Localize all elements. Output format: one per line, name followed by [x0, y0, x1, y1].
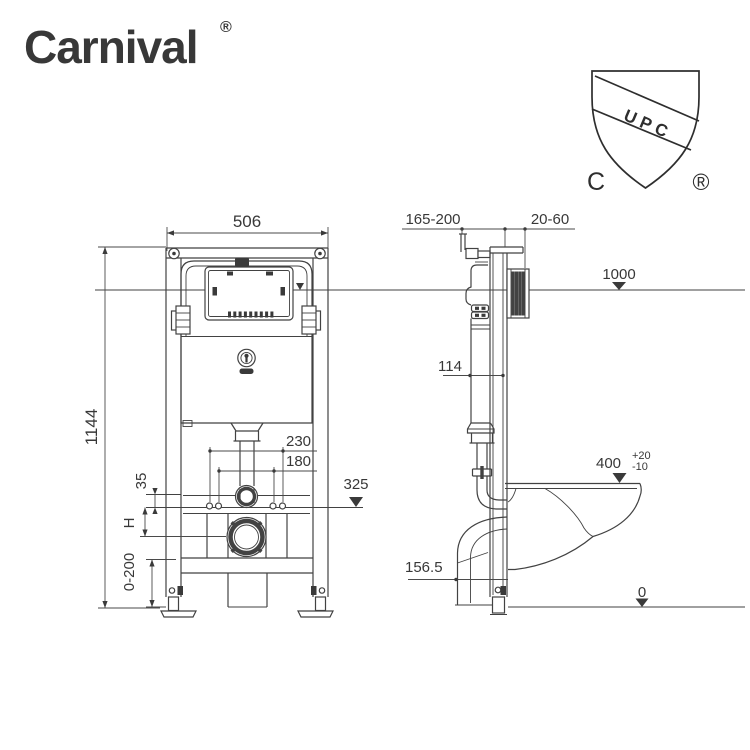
offset-label: 35 [133, 473, 150, 490]
waste-drain-side [455, 517, 507, 605]
flush-pipe-side [470, 433, 508, 509]
dim-flush-bend-level: 325 [343, 476, 368, 507]
drain-level-label: 156.5 [405, 559, 443, 576]
brand-registered-mark: ® [220, 19, 232, 36]
side-view: 165-200 20-60 [402, 211, 745, 615]
dim-variable-height: H [121, 508, 226, 537]
dim-button-level: 1000 [602, 266, 635, 290]
level-marker-icon [296, 283, 304, 290]
panel-comb-strip [228, 312, 273, 318]
frame-height-label: 1144 [82, 409, 101, 446]
upc-label: UPC [621, 106, 675, 143]
carnival-logo: Carnival ® [24, 19, 232, 73]
toilet-bowl-side [505, 484, 641, 570]
waste-outlet [227, 518, 266, 557]
fixing-hole-icon [280, 503, 286, 509]
frame-bottom-box [228, 573, 267, 607]
fixing-hole-icon [207, 503, 213, 509]
floor-level-label: 0 [638, 584, 646, 601]
fixing-hole-icon [216, 503, 222, 509]
wall-sleeve-corrugated [507, 269, 529, 318]
access-panel [205, 258, 304, 321]
dim-floor-level: 0 [636, 584, 649, 607]
frame-width-label: 506 [233, 212, 261, 231]
fixing-spacing-outer-label: 230 [286, 433, 311, 450]
dim-leg-adjustment: 0-200 [121, 553, 176, 607]
front-view: 506 1144 230 180 [82, 212, 369, 617]
level-marker-icon [636, 599, 649, 608]
bowl-top-level-label: 400 [596, 455, 621, 472]
certification-c-mark: C [587, 168, 605, 196]
variable-height-label: H [121, 518, 138, 529]
level-marker-icon [349, 497, 363, 507]
panel-tab [235, 258, 249, 268]
bowl-tolerance-minus-label: -10 [632, 461, 648, 473]
water-supply-pipe [459, 234, 490, 259]
leg-adjustment-label: 0-200 [121, 553, 138, 591]
button-level-label: 1000 [602, 266, 635, 283]
dim-fixing-spacing-inner: 180 [217, 453, 317, 502]
brand-name: Carnival [24, 21, 198, 73]
level-marker-icon [613, 473, 627, 483]
installation-drawing: Carnival ® UPC C ® [0, 0, 750, 750]
wall-clearance-label: 20-60 [531, 211, 569, 228]
frame-feet [161, 586, 333, 617]
dim-install-depth: 165-200 20-60 [402, 211, 575, 268]
fixing-hole-icon [270, 503, 276, 509]
dim-bowl-top-level: 400 +20 -10 [596, 450, 651, 483]
upc-certification-badge: UPC C ® [587, 71, 710, 196]
level-marker-icon [612, 282, 626, 290]
dim-frame-width: 506 [167, 212, 328, 251]
certification-registered-mark: ® [693, 169, 710, 195]
flush-bend-level-label: 325 [343, 476, 368, 493]
technical-drawing-page: Carnival ® UPC C ® [0, 0, 750, 750]
flush-valve [238, 349, 255, 374]
fixing-spacing-inner-label: 180 [286, 453, 311, 470]
install-depth-label: 165-200 [405, 211, 460, 228]
tank-depth-label: 114 [438, 358, 462, 375]
